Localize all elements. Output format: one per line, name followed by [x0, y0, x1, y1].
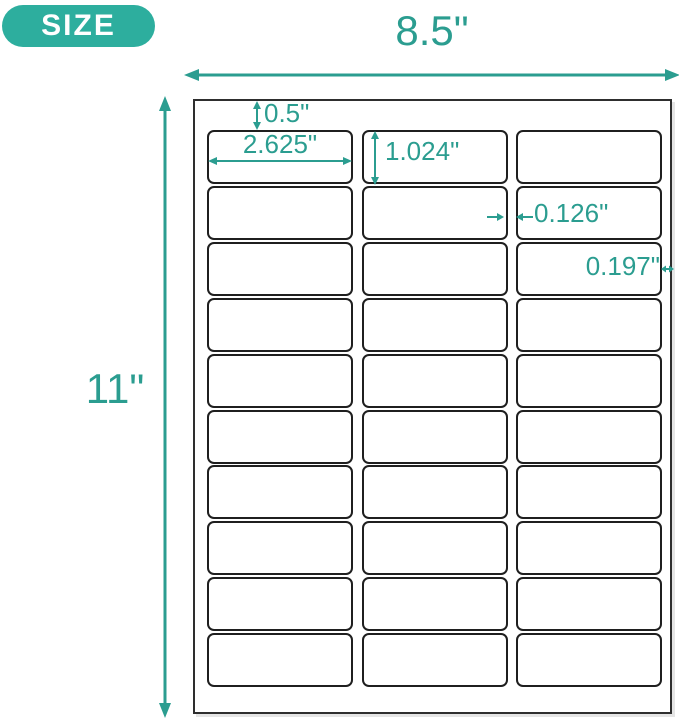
sheet-width-label: 8.5"	[185, 8, 679, 54]
size-badge: SIZE	[2, 5, 155, 47]
sheet-width-arrow	[184, 68, 679, 82]
label-cell	[516, 465, 662, 519]
label-cell	[207, 242, 353, 296]
sheet-height-label: 11"	[75, 366, 155, 412]
label-cell	[207, 354, 353, 408]
label-cell	[516, 577, 662, 631]
label-cell	[516, 410, 662, 464]
label-cell	[207, 298, 353, 352]
label-cell	[207, 633, 353, 687]
label-height-label: 1.024"	[385, 137, 459, 166]
label-cell	[207, 186, 353, 240]
label-cell	[362, 633, 508, 687]
label-cell	[362, 521, 508, 575]
label-cell	[362, 410, 508, 464]
label-width-arrow	[208, 156, 352, 166]
label-width-label: 2.625"	[207, 130, 353, 159]
right-margin-arrow	[661, 264, 674, 274]
label-cell	[516, 633, 662, 687]
label-cell	[207, 521, 353, 575]
right-margin-label: 0.197"	[558, 252, 660, 281]
label-cell	[362, 354, 508, 408]
label-cell	[516, 521, 662, 575]
label-cell	[516, 130, 662, 184]
label-cell	[362, 242, 508, 296]
column-gap-label: 0.126"	[534, 199, 608, 228]
label-height-arrow	[370, 131, 380, 185]
sheet-height-arrow	[158, 96, 172, 718]
label-cell	[516, 298, 662, 352]
column-gap-arrow-right	[516, 212, 533, 222]
label-cell	[362, 298, 508, 352]
size-badge-label: SIZE	[41, 9, 116, 43]
label-cell	[516, 354, 662, 408]
top-margin-arrow	[252, 101, 262, 130]
label-cell	[207, 410, 353, 464]
label-cell	[207, 577, 353, 631]
label-sheet	[193, 99, 672, 714]
label-cell	[207, 465, 353, 519]
label-sheet-size-diagram: SIZE 8.5" 11" 0.5" 2.625" 1.024"	[0, 0, 679, 725]
label-cell	[362, 577, 508, 631]
label-cell	[362, 465, 508, 519]
column-gap-arrow-left	[487, 212, 504, 222]
top-margin-label: 0.5"	[264, 99, 309, 128]
